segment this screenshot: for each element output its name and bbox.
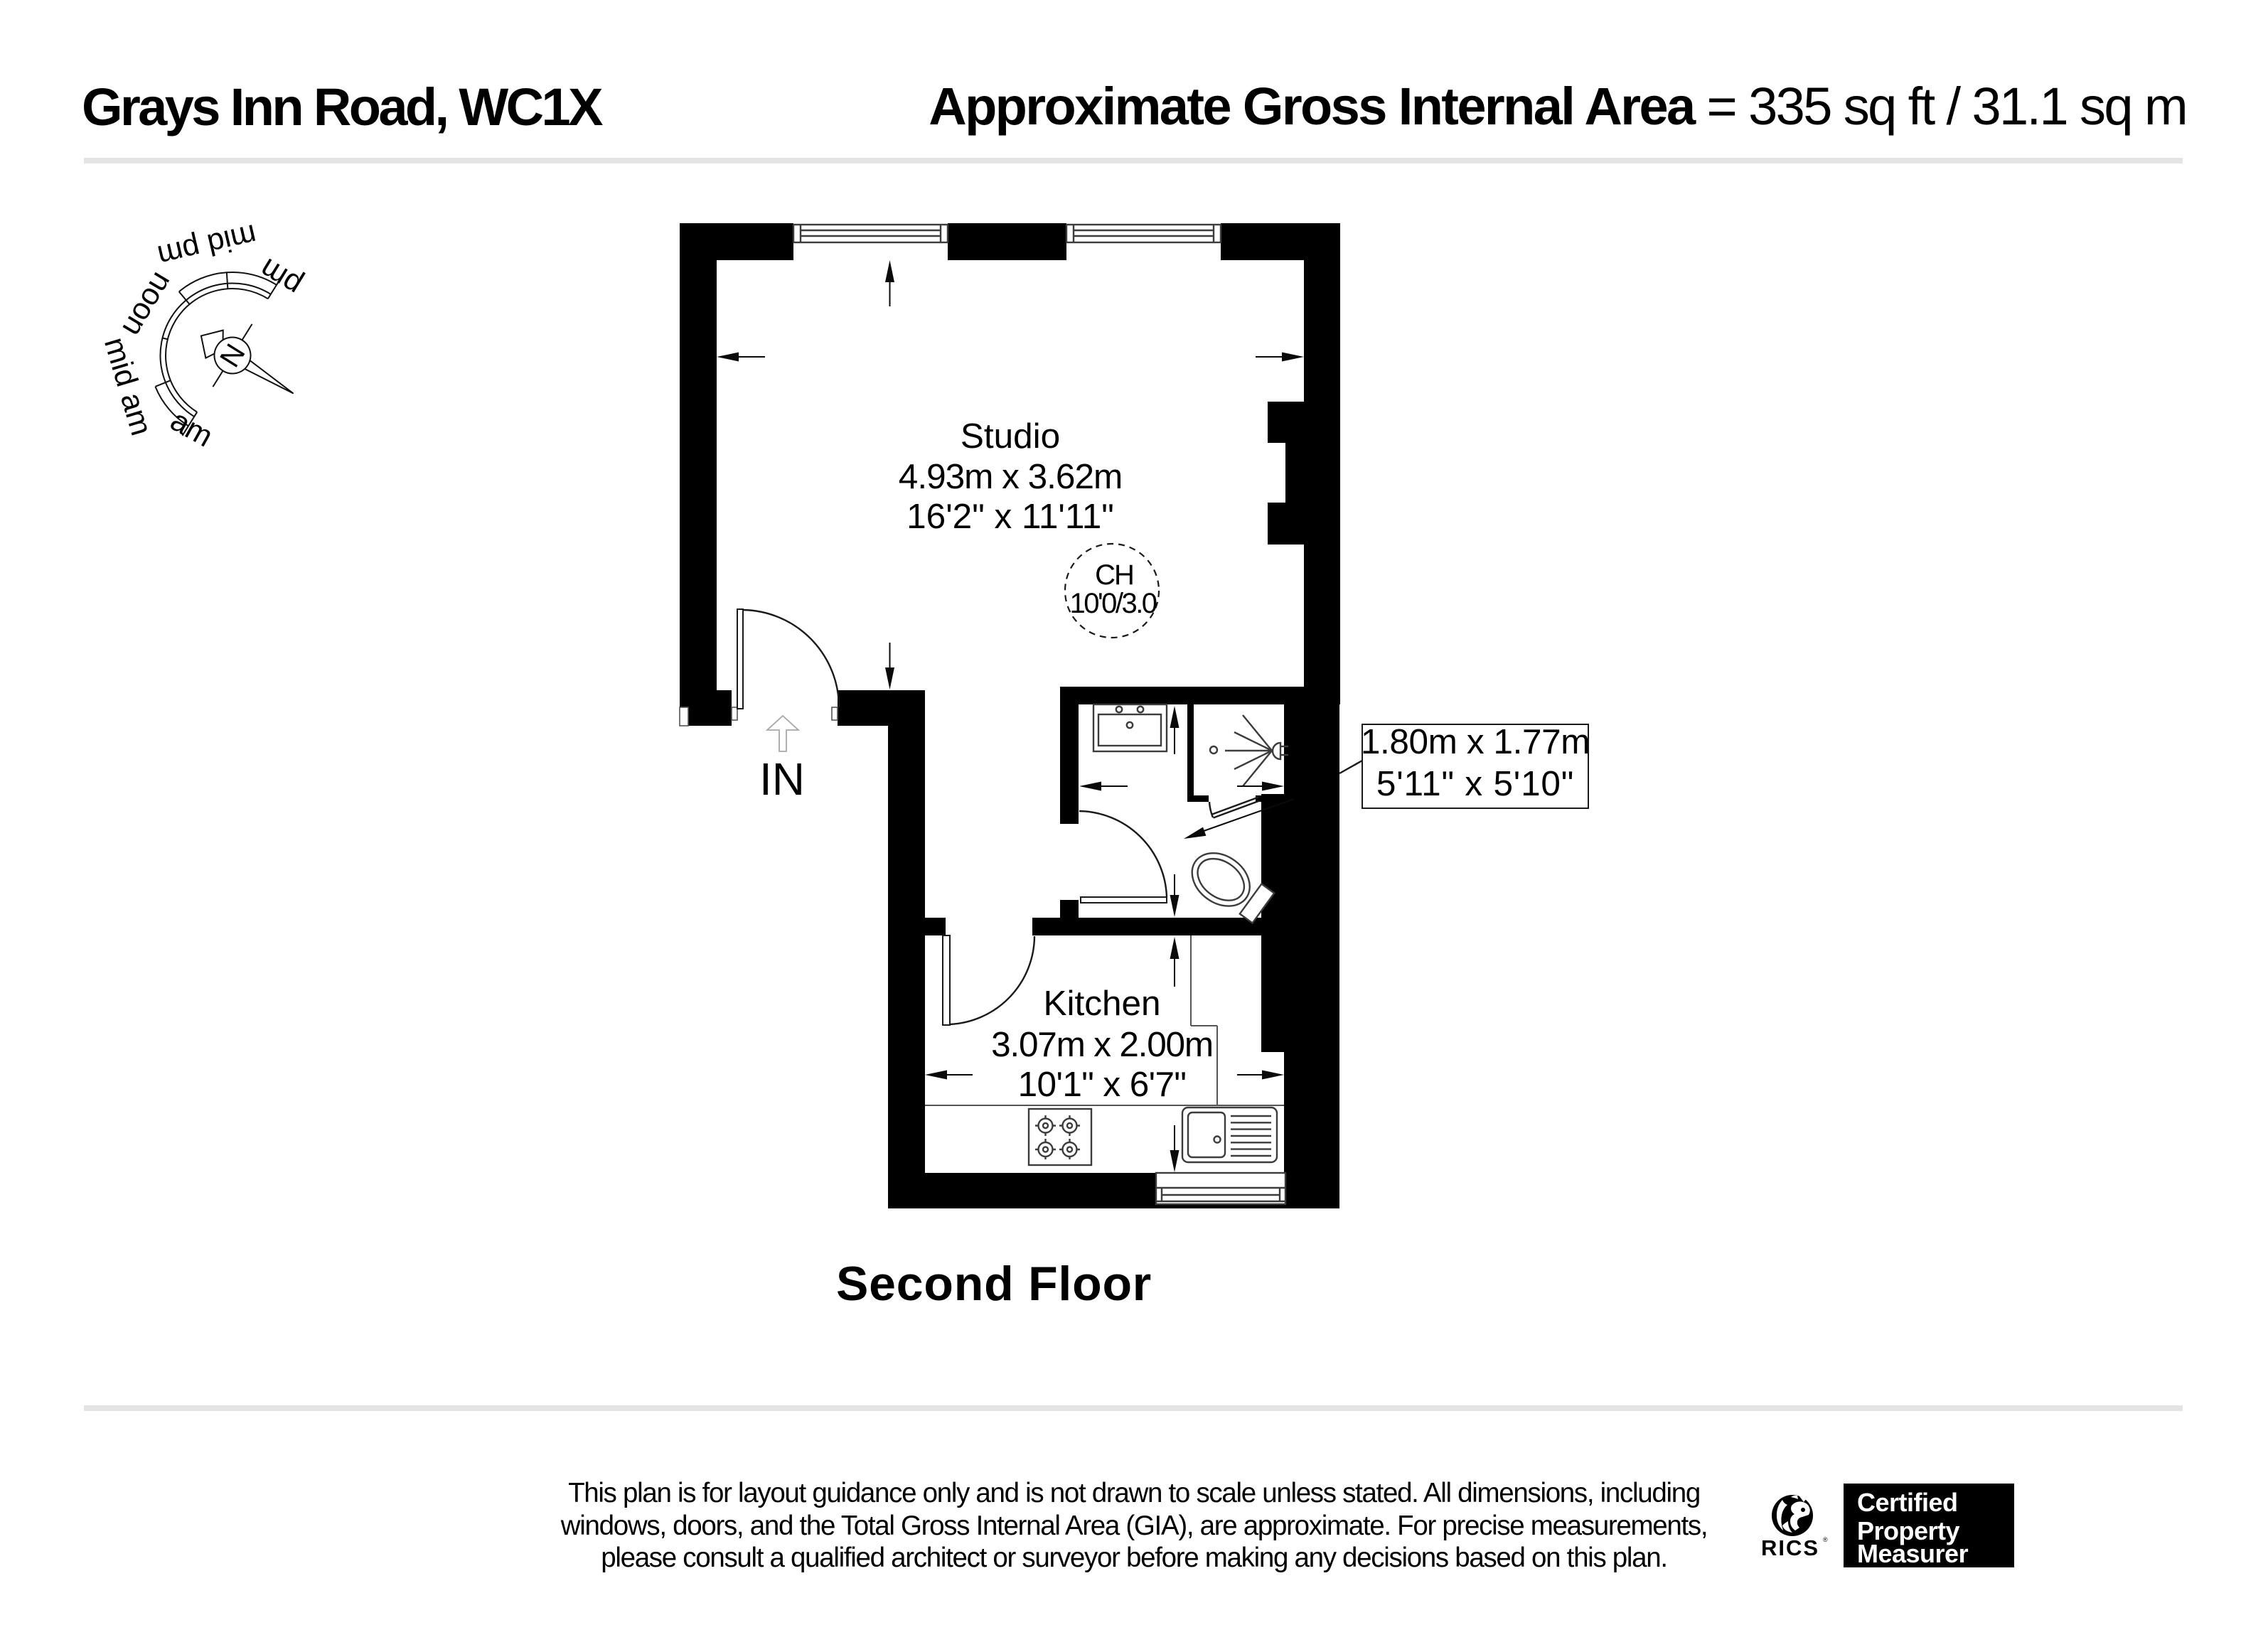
svg-text:16'2" x 11'11": 16'2" x 11'11" <box>906 497 1114 536</box>
svg-text:®: ® <box>1823 1536 1828 1543</box>
svg-text:please consult a qualified arc: please consult a qualified architect or … <box>601 1543 1667 1573</box>
svg-text:Grays Inn Road, WC1X: Grays Inn Road, WC1X <box>82 77 603 136</box>
svg-text:Approximate Gross Internal Are: Approximate Gross Internal Area = 335 sq… <box>929 77 2186 136</box>
svg-text:3.07m x 2.00m: 3.07m x 2.00m <box>991 1025 1213 1064</box>
svg-text:Measurer: Measurer <box>1857 1539 1969 1568</box>
svg-text:RICS: RICS <box>1761 1535 1819 1560</box>
svg-text:CH: CH <box>1095 559 1133 591</box>
svg-text:1.80m x 1.77m: 1.80m x 1.77m <box>1361 722 1590 761</box>
svg-text:This plan is for layout guidan: This plan is for layout guidance only an… <box>568 1478 1700 1508</box>
svg-text:5'11" x 5'10": 5'11" x 5'10" <box>1376 764 1574 803</box>
svg-text:10'1" x 6'7": 10'1" x 6'7" <box>1018 1065 1187 1104</box>
svg-text:4.93m x 3.62m: 4.93m x 3.62m <box>899 457 1122 496</box>
svg-text:Studio: Studio <box>961 417 1060 456</box>
svg-text:IN: IN <box>759 753 805 805</box>
svg-text:Certified: Certified <box>1857 1488 1958 1517</box>
svg-text:Second Floor: Second Floor <box>836 1257 1152 1311</box>
svg-text:windows, doors, and the Total: windows, doors, and the Total Gross Inte… <box>560 1511 1707 1541</box>
svg-text:Kitchen: Kitchen <box>1043 984 1160 1023</box>
svg-text:10'0/3.0: 10'0/3.0 <box>1069 588 1156 619</box>
